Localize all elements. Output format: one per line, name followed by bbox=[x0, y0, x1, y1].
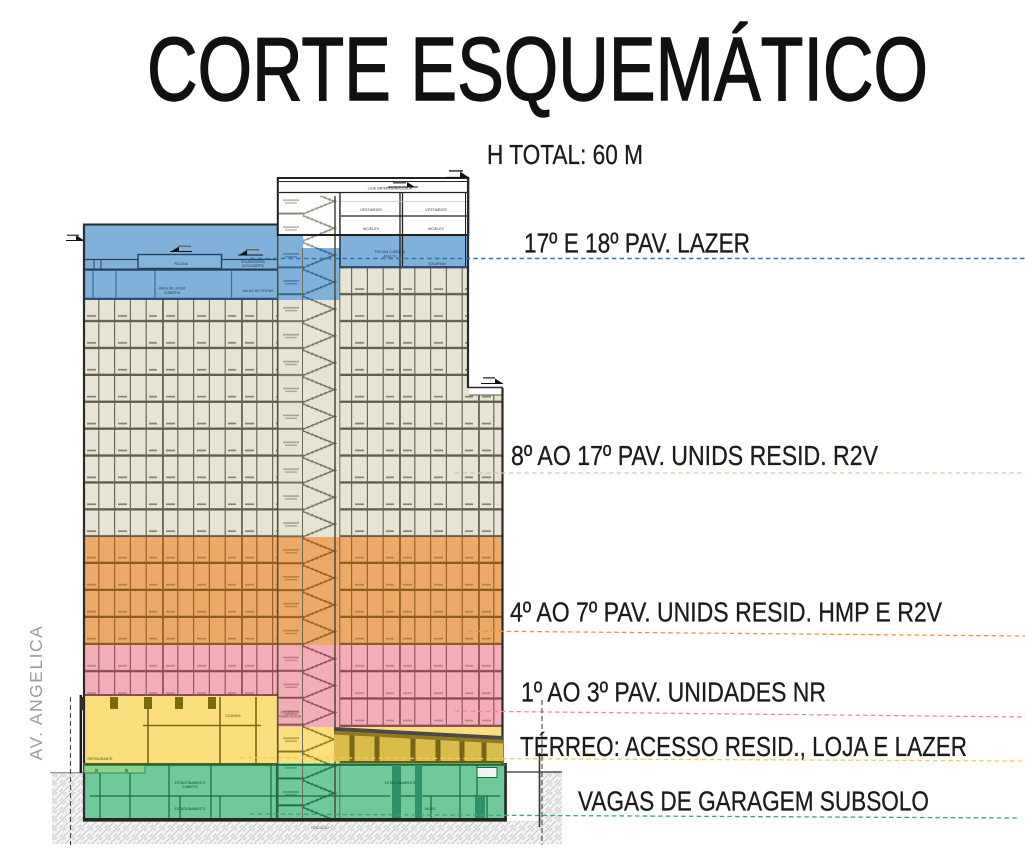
svg-text:VAGAS: VAGAS bbox=[424, 807, 436, 811]
svg-text:COBERTA: COBERTA bbox=[164, 291, 181, 295]
svg-text:COBERTO: COBERTO bbox=[182, 785, 199, 789]
svg-text:PISCINA COBERTA: PISCINA COBERTA bbox=[375, 250, 406, 254]
svg-text:VAGAS DE GARAGEM SUBSOLO: VAGAS DE GARAGEM SUBSOLO bbox=[578, 786, 929, 817]
svg-text:AV. ANGELICA: AV. ANGELICA bbox=[26, 625, 46, 761]
svg-text:SALAO DE FESTAS: SALAO DE FESTAS bbox=[243, 289, 275, 293]
svg-text:CORTE ESQUEMÁTICO: CORTE ESQUEMÁTICO bbox=[147, 20, 928, 120]
svg-text:1º AO 3º PAV. UNIDADES NR: 1º AO 3º PAV. UNIDADES NR bbox=[521, 677, 826, 708]
svg-text:COZINHA: COZINHA bbox=[225, 714, 241, 718]
svg-text:SOLARIUM: SOLARIUM bbox=[428, 262, 446, 266]
svg-text:FUNDACAO: FUNDACAO bbox=[311, 826, 330, 830]
svg-text:TÉRREO: ACESSO RESID., LOJA E: TÉRREO: ACESSO RESID., LOJA E LAZER bbox=[520, 731, 967, 762]
svg-text:VESTIARIOS: VESTIARIOS bbox=[360, 208, 382, 212]
svg-text:4º AO 7º PAV. UNIDS RESID. HMP: 4º AO 7º PAV. UNIDS RESID. HMP E R2V bbox=[510, 597, 942, 628]
svg-text:ESTACIONAMENTO: ESTACIONAMENTO bbox=[385, 781, 416, 785]
svg-text:DESCOBERTA: DESCOBERTA bbox=[242, 264, 265, 268]
svg-text:EMERGENCIA: EMERGENCIA bbox=[279, 715, 302, 719]
svg-text:PISCINA: PISCINA bbox=[174, 262, 189, 266]
svg-text:RESTAURANTE: RESTAURANTE bbox=[88, 757, 114, 761]
svg-text:WC/ELEV: WC/ELEV bbox=[363, 227, 380, 231]
svg-text:VESTIARIOS: VESTIARIOS bbox=[425, 208, 447, 212]
svg-text:8º AO 17º PAV. UNIDS RESID. R2: 8º AO 17º PAV. UNIDS RESID. R2V bbox=[511, 440, 878, 471]
svg-text:17º E 18º PAV. LAZER: 17º E 18º PAV. LAZER bbox=[524, 228, 750, 259]
svg-text:ESTACIONAMENTO: ESTACIONAMENTO bbox=[175, 807, 206, 811]
svg-text:H TOTAL: 60 M: H TOTAL: 60 M bbox=[487, 139, 643, 170]
svg-text:AREA DE LAZER: AREA DE LAZER bbox=[159, 287, 186, 291]
svg-text:WC/ELEV: WC/ELEV bbox=[428, 227, 445, 231]
